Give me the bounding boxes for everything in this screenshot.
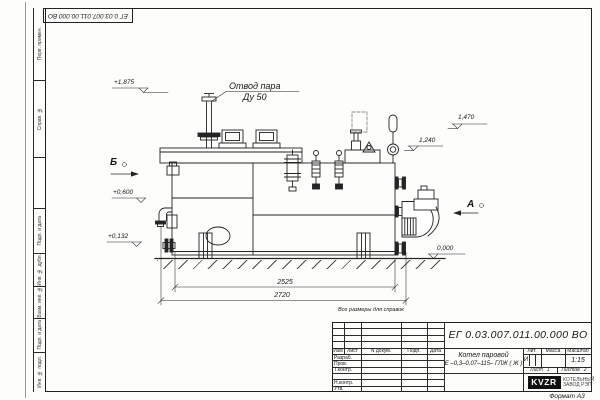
level-gauge-1 <box>312 151 320 190</box>
elevation-label-0600: +0,600 <box>113 189 133 196</box>
product-name-line1: Котел паровой <box>446 351 521 360</box>
role-razrab: Разраб. <box>334 355 352 361</box>
dimension-2720: 2720 <box>267 292 297 299</box>
format-note: Формат А3 <box>543 393 591 400</box>
role-utv: Утв. <box>334 386 344 392</box>
elevation-label-1240: 1,240 <box>419 137 435 144</box>
title-block-line <box>401 322 402 392</box>
view-marker-b: Б <box>110 157 117 168</box>
sheets-total-cell: Листов 2 <box>557 367 591 373</box>
col-header-izm: Изм <box>332 348 344 354</box>
right-flange-bottom <box>395 242 406 255</box>
feedwater-elbow <box>156 208 178 228</box>
manhole <box>206 227 230 245</box>
sheet-number-cell: Лист 1 <box>523 367 557 373</box>
role-nkontr: Н.контр. <box>334 380 353 386</box>
top-platform <box>160 148 302 163</box>
steam-outlet-callout-line2: Ду 50 <box>243 92 266 102</box>
title-block-line <box>332 341 444 342</box>
steam-outlet-pipe <box>198 94 220 149</box>
sheets-label: Листов <box>562 367 580 373</box>
title-block-line <box>332 328 444 329</box>
view-marker-a: А <box>467 199 474 210</box>
elevation-label-1470: 1,470 <box>458 114 474 121</box>
lit-value: И <box>523 355 529 365</box>
role-prov: Пров. <box>334 361 347 367</box>
dimension-2525: 2525 <box>270 279 300 286</box>
col-header-podp: Подп. <box>401 348 427 354</box>
title-block-designation: ЕГ 0.03.007.011.00.000 ВО <box>448 326 588 344</box>
role-tkontr: Т.контр. <box>334 367 352 373</box>
col-header-list: Лист <box>344 348 361 354</box>
blowdown-valve <box>163 239 175 252</box>
title-block-line <box>361 322 362 392</box>
title-block-line <box>427 322 428 392</box>
burner <box>395 186 439 237</box>
title-block-line <box>444 322 445 392</box>
title-block-line <box>529 354 530 367</box>
company-name: КОТЕЛЬНЫЙ ЗАВОД РЭП <box>563 378 591 390</box>
steam-outlet-callout-line1: Отвод пара <box>229 81 280 91</box>
sheets-value: 2 <box>584 367 587 373</box>
elevation-label-1875: +1,875 <box>114 79 134 86</box>
col-header-data: Дата <box>427 348 444 354</box>
title-block-line <box>332 373 592 374</box>
company-logo: KVZR <box>528 376 561 389</box>
company-name-line2: ЗАВОД РЭП <box>563 383 591 389</box>
sheet-value: 1 <box>547 367 550 373</box>
right-flange-top <box>395 177 406 189</box>
col-header-ndokum: N докум. <box>361 348 401 354</box>
level-gauge-2 <box>335 151 343 190</box>
elevation-label-0132: +0,132 <box>108 233 128 240</box>
left-valve-top <box>167 162 179 175</box>
lifting-lug <box>363 142 375 152</box>
sight-glass <box>285 150 301 191</box>
pressure-gauge-siphon <box>388 115 399 163</box>
title-block-line <box>535 354 536 367</box>
title-block-line <box>332 335 444 336</box>
hatch-cover-1 <box>219 130 246 148</box>
masshtab-value: 1:15 <box>565 356 591 365</box>
sheet-label: Лист <box>530 367 543 373</box>
reference-note: Все размеры для справок <box>338 307 404 313</box>
lit-header: Лит. <box>523 348 541 354</box>
safety-valve <box>351 112 368 150</box>
elevation-label-0000: 0,000 <box>437 245 453 252</box>
masshtab-header: Масштаб <box>565 348 591 354</box>
drawing-sheet: Перв. примен. Справ. № Подп. и дата Инв.… <box>0 0 600 400</box>
massa-header: Масса <box>541 348 565 354</box>
product-name-line2: Е –0,3–0,07–115– ГЛЖ ( Ж ) <box>444 360 523 368</box>
hatch-cover-2 <box>253 130 280 148</box>
